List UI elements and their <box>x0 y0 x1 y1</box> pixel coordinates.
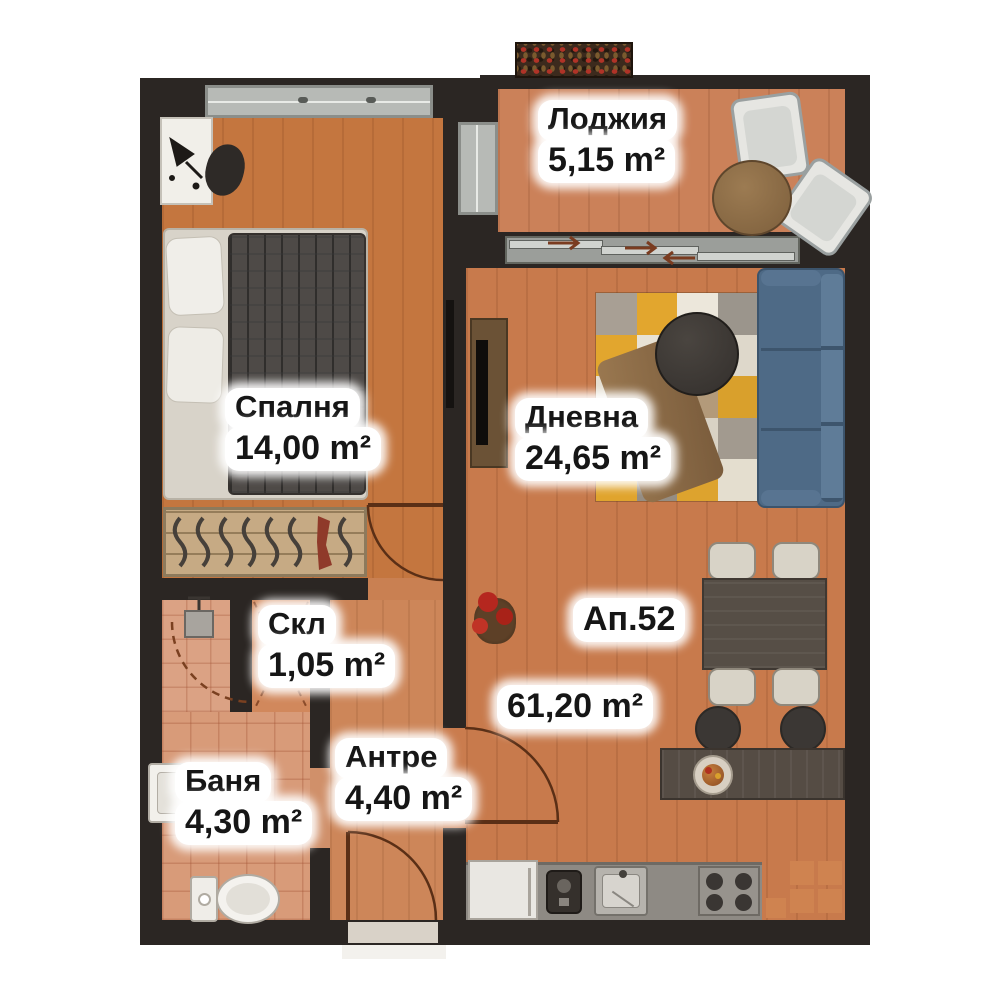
room-name: Спалня <box>225 388 360 429</box>
wardrobe <box>163 507 367 577</box>
faucet <box>619 870 627 878</box>
fridge <box>468 860 538 920</box>
potted-plant <box>468 590 522 652</box>
sofa-seam <box>761 428 821 431</box>
sofa <box>757 268 845 508</box>
wall-bedroom-bottom <box>140 578 368 600</box>
dining-chair <box>708 542 756 580</box>
toilet-tank <box>190 876 218 922</box>
window-handle <box>366 97 376 103</box>
window-mullion <box>208 101 430 103</box>
toilet-bowl <box>216 874 280 924</box>
room-area: 5,15 m² <box>538 139 675 183</box>
sofa-back-cushions <box>821 274 843 502</box>
armchair-seat <box>787 171 859 244</box>
stove <box>698 866 760 916</box>
label-bathroom: Баня 4,30 m² <box>175 762 312 845</box>
room-name: Скл <box>258 605 336 646</box>
side-window <box>458 122 498 215</box>
shaft-cell <box>790 889 814 913</box>
room-area: 24,65 m² <box>515 437 671 481</box>
room-area: 4,40 m² <box>335 777 472 821</box>
room-name: Лоджия <box>538 100 677 141</box>
shaft-cell <box>790 861 814 885</box>
room-name: Антре <box>335 738 447 779</box>
sliding-panel <box>509 240 603 249</box>
label-hall: Антре 4,40 m² <box>335 738 472 821</box>
sofa-seam <box>761 348 821 351</box>
floor-plan: Лоджия 5,15 m² Спалня 14,00 m² Дневна 24… <box>0 0 1000 1000</box>
sofa-armrest <box>761 490 821 506</box>
kitchen-sink <box>594 866 648 916</box>
sofa-armrest <box>761 270 821 286</box>
room-area: 1,05 m² <box>258 644 395 688</box>
bar-stool <box>780 706 826 752</box>
apartment-number: Ап.52 <box>573 598 685 642</box>
bedroom-tv <box>446 300 454 408</box>
label-apartment-number: Ап.52 <box>573 598 685 642</box>
pillow <box>166 326 225 404</box>
label-storage: Скл 1,05 m² <box>258 605 395 688</box>
pillow <box>165 236 225 317</box>
tv <box>476 340 488 445</box>
desk <box>160 117 213 205</box>
bar-stool <box>695 706 741 752</box>
shaft-cell <box>766 898 786 918</box>
bathroom-doorway <box>310 768 330 848</box>
window-mullion <box>476 125 478 212</box>
shower-head <box>184 610 214 638</box>
wall-shower-storage <box>230 592 252 712</box>
loggia-round-table <box>712 160 792 236</box>
label-bedroom: Спалня 14,00 m² <box>225 388 381 471</box>
food-plate <box>693 755 733 795</box>
label-total-area: 61,20 m² <box>497 685 653 729</box>
dining-chair <box>772 542 820 580</box>
label-living: Дневна 24,65 m² <box>515 398 671 481</box>
label-loggia: Лоджия 5,15 m² <box>538 100 677 183</box>
room-area: 14,00 m² <box>225 427 381 471</box>
dining-chair <box>772 668 820 706</box>
dining-chair <box>708 668 756 706</box>
bedroom-window <box>205 85 433 118</box>
bedroom-doorway <box>368 578 443 600</box>
bar-counter <box>660 748 845 800</box>
room-name: Дневна <box>515 398 648 439</box>
total-area: 61,20 m² <box>497 685 653 729</box>
dining-table <box>702 578 827 670</box>
flower-box <box>515 42 633 78</box>
room-area: 4,30 m² <box>175 801 312 845</box>
sliding-panel <box>697 252 795 261</box>
room-name: Баня <box>175 762 271 803</box>
entrance-doorway <box>348 922 438 943</box>
shaft-cell <box>818 889 842 913</box>
entrance-threshold <box>342 945 446 959</box>
sliding-panel <box>601 246 699 255</box>
coffee-table <box>655 312 739 396</box>
coffee-machine <box>546 870 582 914</box>
window-handle <box>298 97 308 103</box>
shaft-cell <box>818 861 842 885</box>
loggia-sliding-door <box>505 236 800 264</box>
